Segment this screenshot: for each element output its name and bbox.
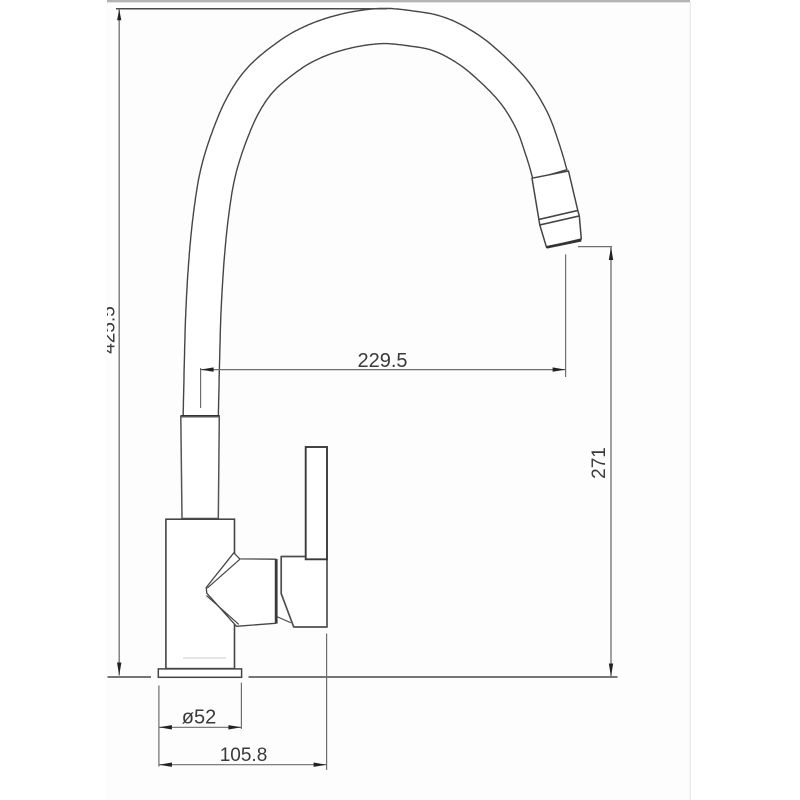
svg-text:ø52: ø52 [182, 707, 216, 729]
svg-text:271: 271 [589, 447, 610, 479]
svg-text:229.5: 229.5 [357, 350, 407, 372]
svg-text:105.8: 105.8 [220, 745, 268, 766]
